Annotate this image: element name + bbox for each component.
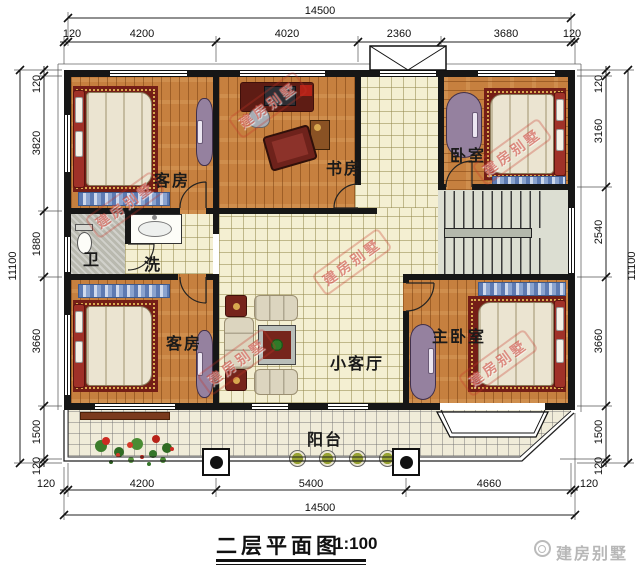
dim-bottom-seg: 4200 <box>130 478 154 490</box>
dim-left-total: 11100 <box>7 252 19 281</box>
dim-left-seg: 3820 <box>31 131 43 155</box>
dim-right-seg: 120 <box>593 75 605 93</box>
dim-top-seg: 4020 <box>275 28 299 40</box>
dim-bottom-seg: 120 <box>37 478 55 490</box>
column <box>392 448 420 476</box>
dim-left-seg: 120 <box>31 457 43 475</box>
floor-plan-canvas: 客房 书房 卧室 卫 洗 客房 小客厅 主卧室 阳台 建房别墅 建房别墅 建房别… <box>0 0 640 576</box>
title-underline <box>216 564 366 565</box>
room-label-master: 主卧室 <box>432 323 486 347</box>
plan-scale: 1:100 <box>334 534 377 554</box>
room-label-guest-bottom: 客房 <box>166 330 202 354</box>
room-label-study: 书房 <box>326 155 362 179</box>
dim-right-seg: 2540 <box>593 220 605 244</box>
dim-right-total: 11100 <box>626 252 638 281</box>
dim-bottom-seg: 4660 <box>477 478 501 490</box>
dim-top-seg: 2360 <box>387 28 411 40</box>
room-label-wc: 卫 <box>83 246 101 270</box>
column <box>202 448 230 476</box>
title-underline <box>216 559 366 562</box>
dim-bottom-total: 14500 <box>305 502 336 514</box>
dim-top-seg: 120 <box>63 28 81 40</box>
dim-left-seg: 3660 <box>31 329 43 353</box>
page-title: 二层平面图 <box>216 530 341 560</box>
dim-left-seg: 120 <box>31 75 43 93</box>
dim-right-seg: 120 <box>593 457 605 475</box>
room-label-balcony: 阳台 <box>307 426 343 450</box>
dim-top-total: 14500 <box>305 5 336 17</box>
brand-watermark: 建房别墅 <box>556 540 628 564</box>
room-label-wash: 洗 <box>144 251 162 275</box>
dim-top-seg: 120 <box>563 28 581 40</box>
dim-right-seg: 3660 <box>593 329 605 353</box>
dim-left-seg: 1880 <box>31 232 43 256</box>
dim-right-seg: 3160 <box>593 119 605 143</box>
dim-right-seg: 1500 <box>593 420 605 444</box>
dim-top-seg: 4200 <box>130 28 154 40</box>
dim-top-seg: 3680 <box>494 28 518 40</box>
dim-left-seg: 1500 <box>31 420 43 444</box>
dim-bottom-seg: 120 <box>580 478 598 490</box>
room-label-living: 小客厅 <box>330 350 384 374</box>
dim-bottom-seg: 5400 <box>299 478 323 490</box>
brand-logo-icon <box>534 540 551 557</box>
